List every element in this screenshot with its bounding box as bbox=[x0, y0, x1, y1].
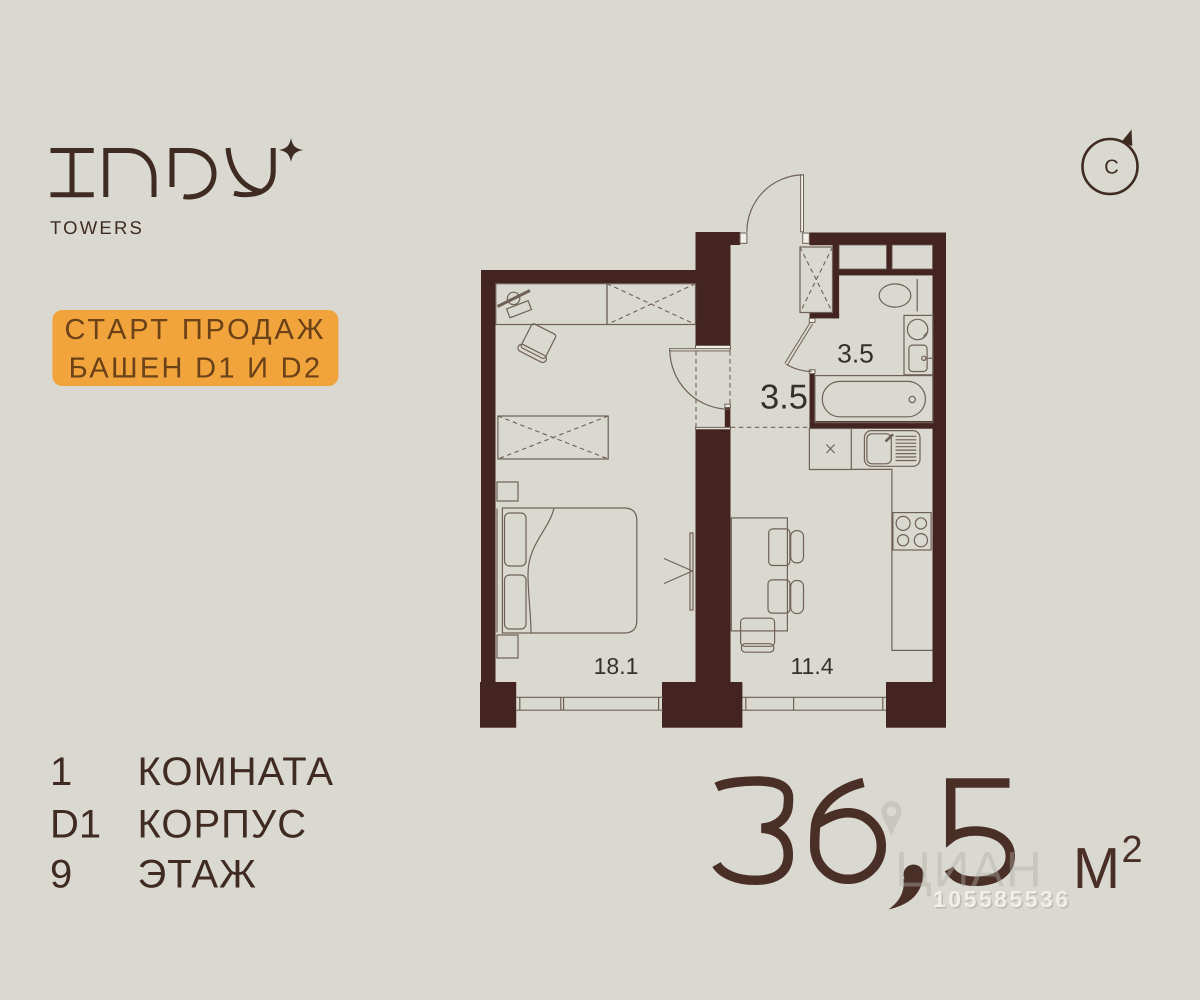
svg-text:1: 1 bbox=[50, 750, 72, 794]
svg-text:18.1: 18.1 bbox=[594, 653, 639, 679]
svg-text:СТАРТ ПРОДАЖ: СТАРТ ПРОДАЖ bbox=[65, 314, 327, 346]
svg-text:C: C bbox=[1104, 157, 1118, 179]
svg-text:D1: D1 bbox=[50, 803, 101, 847]
svg-text:3.5: 3.5 bbox=[837, 339, 874, 369]
svg-text:БАШЕН D1 И D2: БАШЕН D1 И D2 bbox=[69, 353, 323, 385]
svg-text:ЭТАЖ: ЭТАЖ bbox=[138, 853, 257, 897]
svg-text:9: 9 bbox=[50, 853, 72, 897]
svg-text:11.4: 11.4 bbox=[790, 653, 833, 679]
svg-text:2: 2 bbox=[1122, 829, 1143, 871]
svg-text:КОРПУС: КОРПУС bbox=[138, 803, 308, 847]
svg-text:3.5: 3.5 bbox=[760, 378, 808, 416]
svg-text:М: М bbox=[1073, 836, 1120, 901]
svg-text:105585536: 105585536 bbox=[933, 886, 1071, 912]
svg-text:TOWERS: TOWERS bbox=[50, 217, 144, 238]
svg-text:КОМНАТА: КОМНАТА bbox=[138, 750, 335, 794]
